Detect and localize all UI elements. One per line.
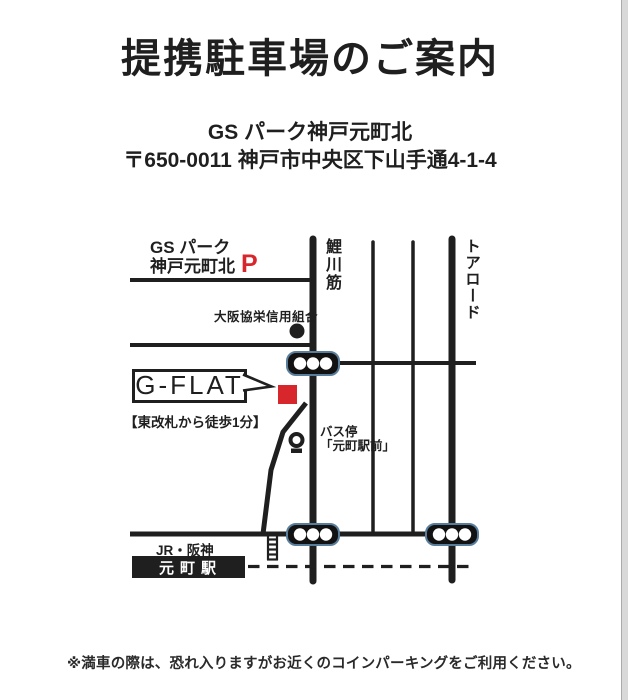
traffic-light-icon-bottom-right (426, 524, 478, 545)
walk-note: 【東改札から徒歩1分】 (124, 411, 267, 431)
road-diagonal-street (263, 403, 306, 534)
bank-dot-icon (290, 324, 305, 339)
traffic-light-icon-middle (287, 352, 339, 375)
bus-stop-icon (291, 434, 303, 453)
destination-name: G-FLAT (132, 369, 247, 402)
road-label-toa-road: トアロード (460, 238, 482, 321)
bus-stop-label-line2: 「元町駅前」 (320, 440, 395, 454)
traffic-light-icon-bottom-left (287, 524, 339, 545)
bus-stop-label: バス停 「元町駅前」 (320, 426, 395, 453)
destination-marker (278, 385, 297, 404)
bank-label: 大阪協栄信用組合 (214, 306, 318, 325)
map-parking-label-line1: GS パーク (150, 239, 235, 258)
full-parking-footnote: ※満車の際は、恐れ入りますがお近くのコインパーキングをご利用ください。 (67, 652, 587, 673)
access-map (0, 0, 628, 700)
station-stairs-icon (267, 535, 278, 560)
map-parking-label-line2: 神戸元町北 (150, 258, 235, 277)
scrollbar-track[interactable] (621, 0, 628, 700)
station-badge: 元町駅 (132, 556, 245, 578)
map-parking-label: GS パーク 神戸元町北 (150, 239, 235, 276)
road-label-koikawa-suji: 鯉川筋 (319, 238, 343, 292)
parking-p-mark: P (241, 250, 258, 279)
parking-guide-page: 提携駐車場のご案内 GS パーク神戸元町北 〒650-0011 神戸市中央区下山… (0, 0, 628, 700)
bus-stop-label-line1: バス停 (320, 426, 395, 440)
